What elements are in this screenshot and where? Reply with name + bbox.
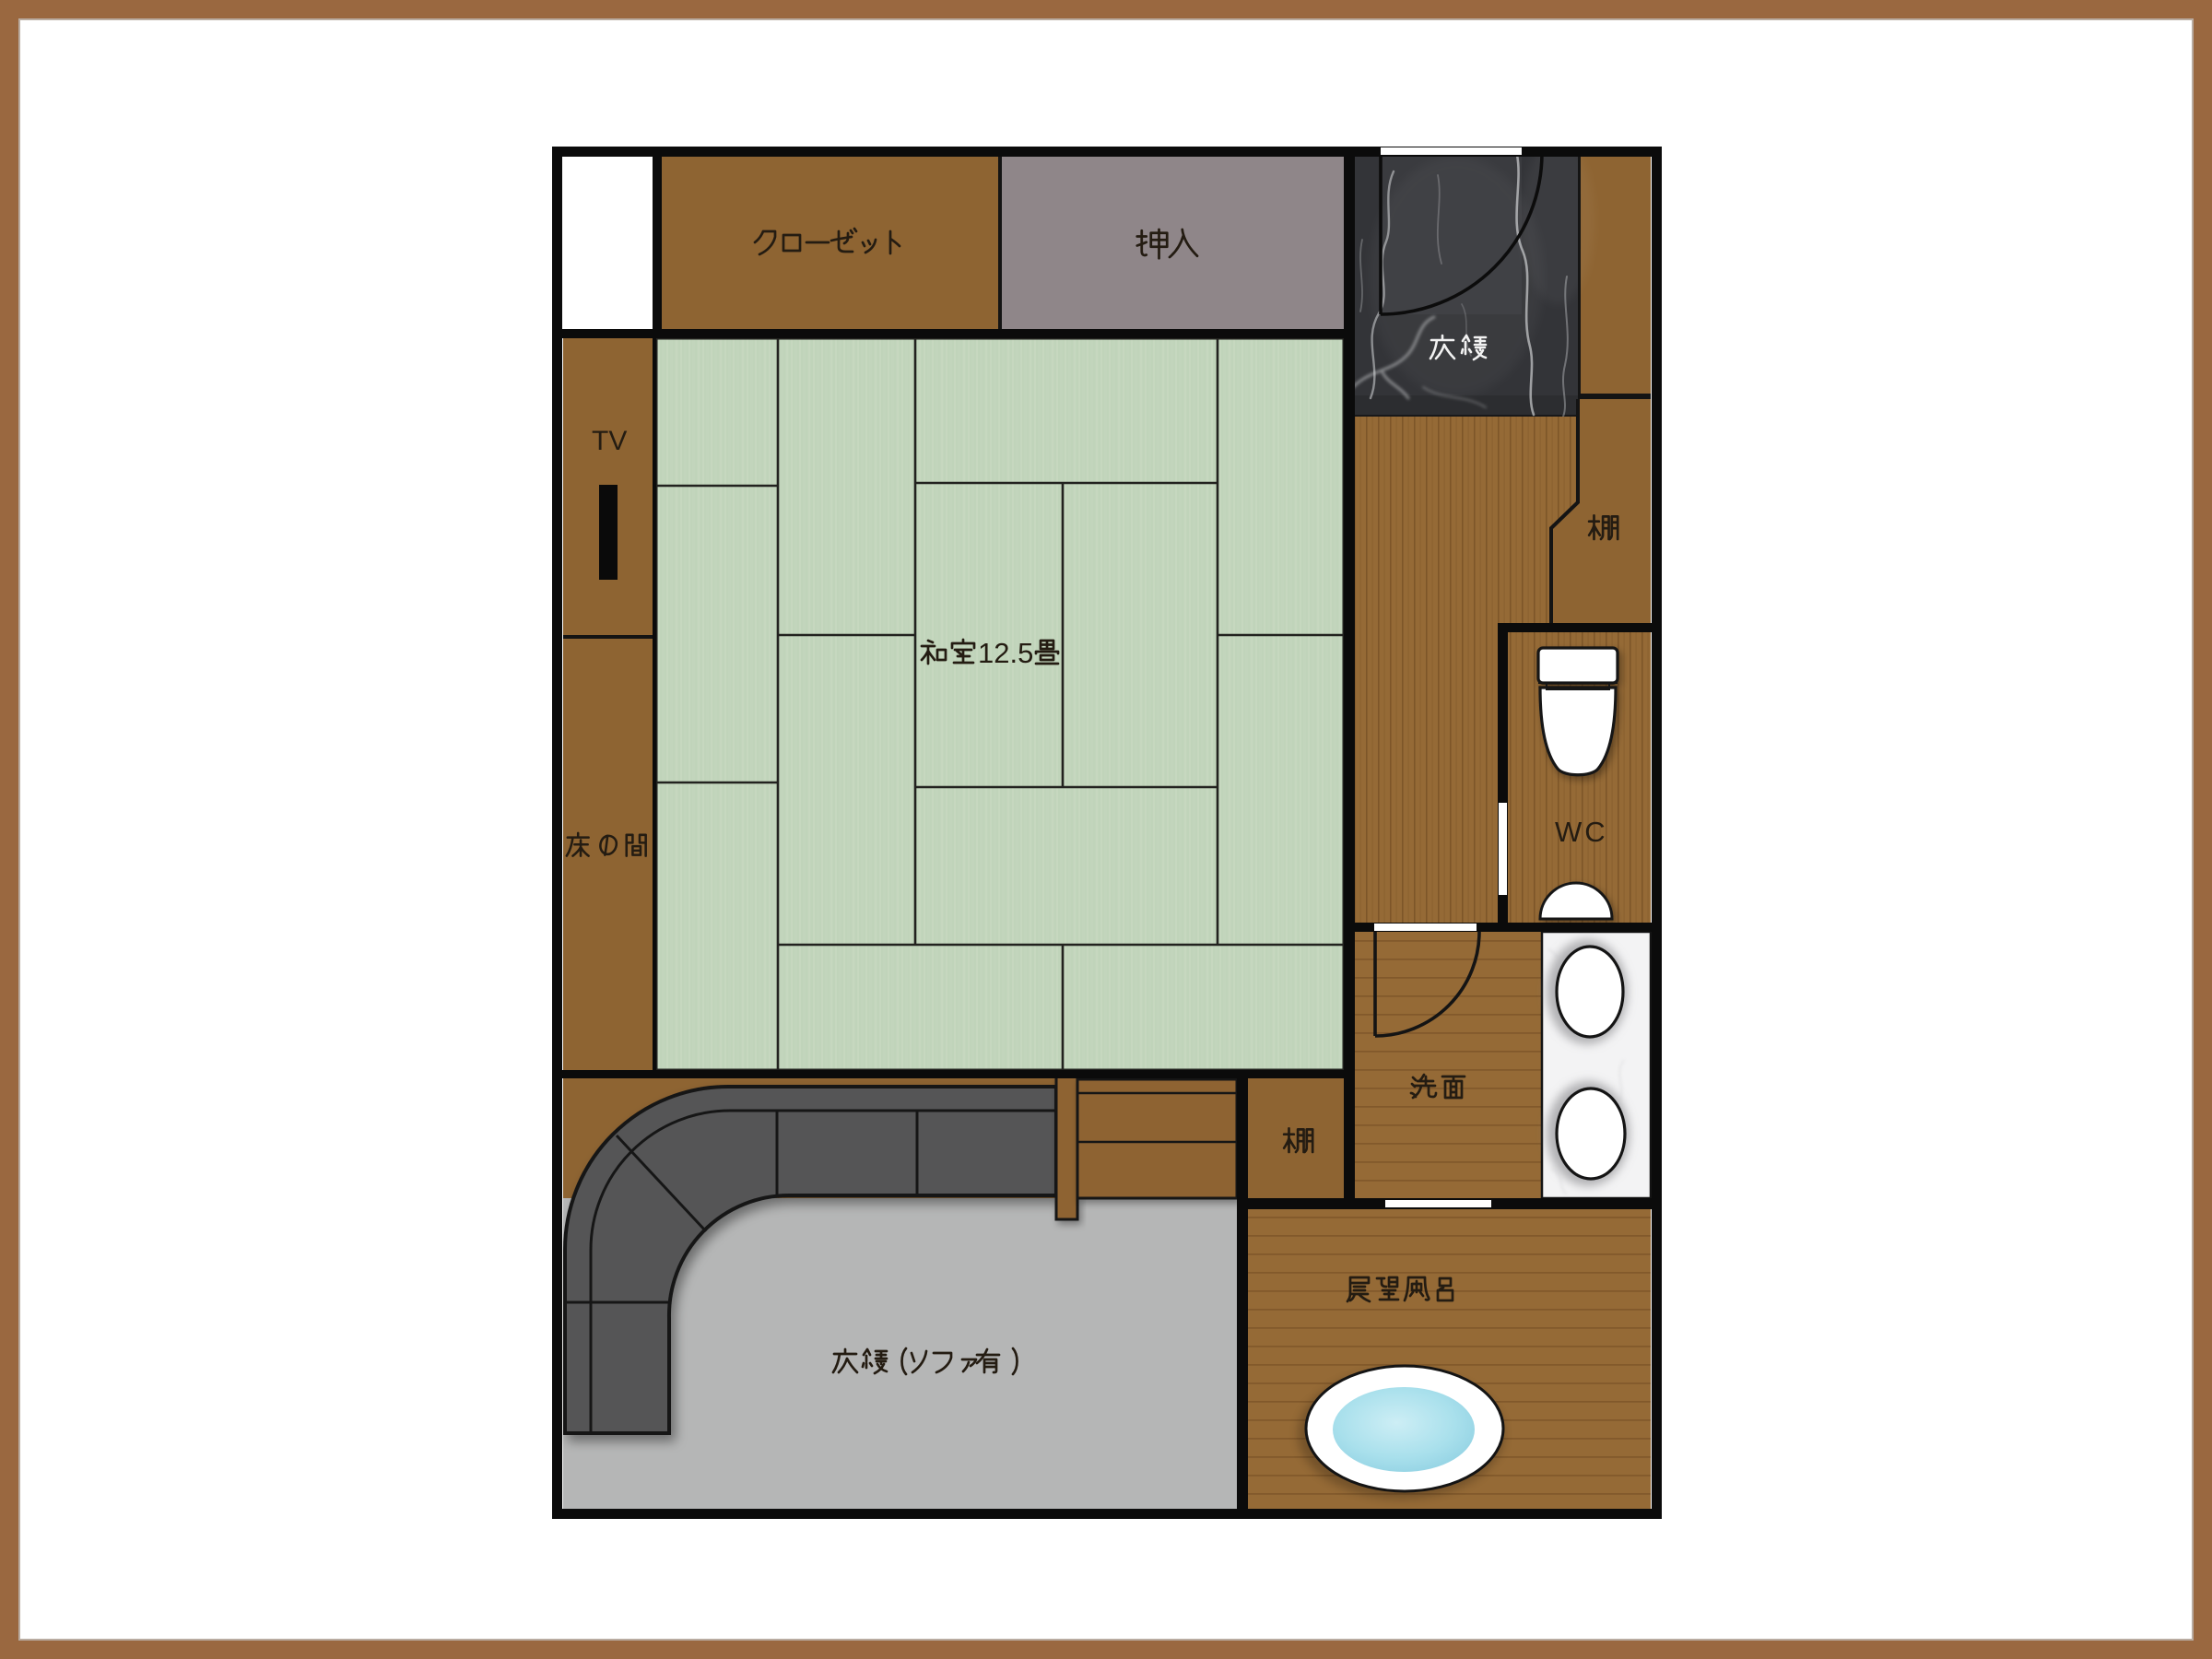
svg-text:12.5: 12.5 <box>978 637 1033 669</box>
svg-text:WC: WC <box>1555 816 1608 848</box>
svg-text:TV: TV <box>592 426 627 456</box>
